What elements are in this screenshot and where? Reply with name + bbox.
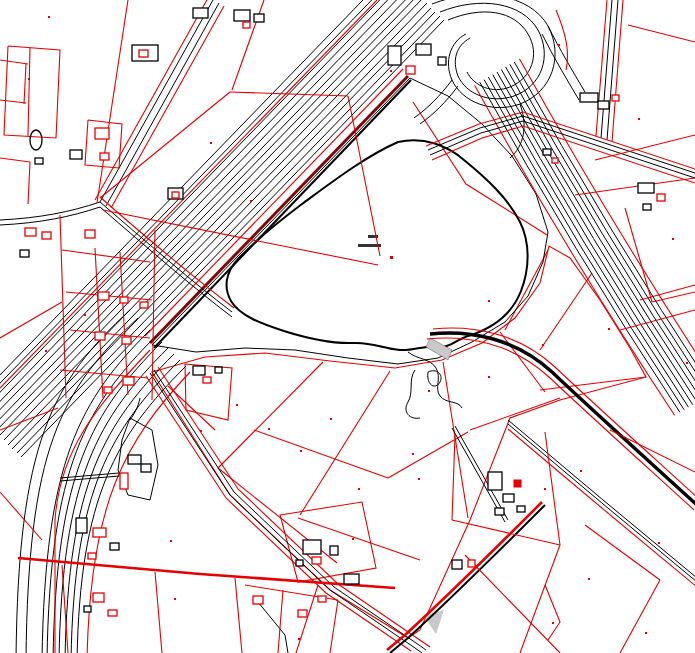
building xyxy=(612,95,619,101)
building xyxy=(100,153,109,160)
map-viewport xyxy=(0,0,695,653)
building xyxy=(95,332,105,340)
map-canvas[interactable] xyxy=(0,0,695,653)
building xyxy=(93,528,106,537)
building xyxy=(215,367,222,373)
building xyxy=(296,560,303,566)
building xyxy=(312,557,321,564)
building xyxy=(172,192,179,198)
building xyxy=(243,22,250,28)
building xyxy=(20,250,29,257)
building xyxy=(580,93,598,102)
building xyxy=(35,158,43,164)
building xyxy=(643,204,651,210)
building xyxy=(70,150,82,159)
building xyxy=(638,183,654,193)
building xyxy=(514,480,521,487)
building xyxy=(123,377,134,385)
building xyxy=(406,66,415,74)
building xyxy=(104,387,112,393)
building xyxy=(85,230,95,238)
building xyxy=(488,472,502,490)
building xyxy=(141,464,151,472)
building xyxy=(25,228,36,236)
building xyxy=(42,232,51,239)
building xyxy=(552,158,558,163)
building xyxy=(93,593,104,602)
building xyxy=(139,50,148,57)
building xyxy=(108,610,117,616)
building xyxy=(193,366,205,375)
building xyxy=(110,543,119,550)
building xyxy=(330,546,338,555)
building xyxy=(388,46,401,65)
building xyxy=(98,292,109,300)
building xyxy=(122,337,131,344)
building xyxy=(416,44,431,55)
building xyxy=(298,610,307,617)
building xyxy=(253,596,263,604)
building xyxy=(495,508,504,515)
building xyxy=(120,297,128,303)
building xyxy=(452,560,462,569)
building xyxy=(468,560,475,567)
building xyxy=(254,14,264,22)
building xyxy=(120,473,128,489)
building xyxy=(234,10,250,21)
building xyxy=(344,574,359,584)
building xyxy=(657,194,665,201)
building xyxy=(128,455,141,464)
building xyxy=(95,128,109,139)
building xyxy=(140,302,148,308)
building xyxy=(438,57,446,65)
building xyxy=(598,101,609,109)
building xyxy=(203,377,211,383)
building xyxy=(517,506,525,512)
building xyxy=(88,553,96,559)
building xyxy=(76,518,87,533)
building xyxy=(303,540,321,554)
building xyxy=(503,494,514,502)
building xyxy=(318,596,326,602)
building xyxy=(543,149,551,155)
building xyxy=(84,606,91,612)
building xyxy=(193,8,208,18)
